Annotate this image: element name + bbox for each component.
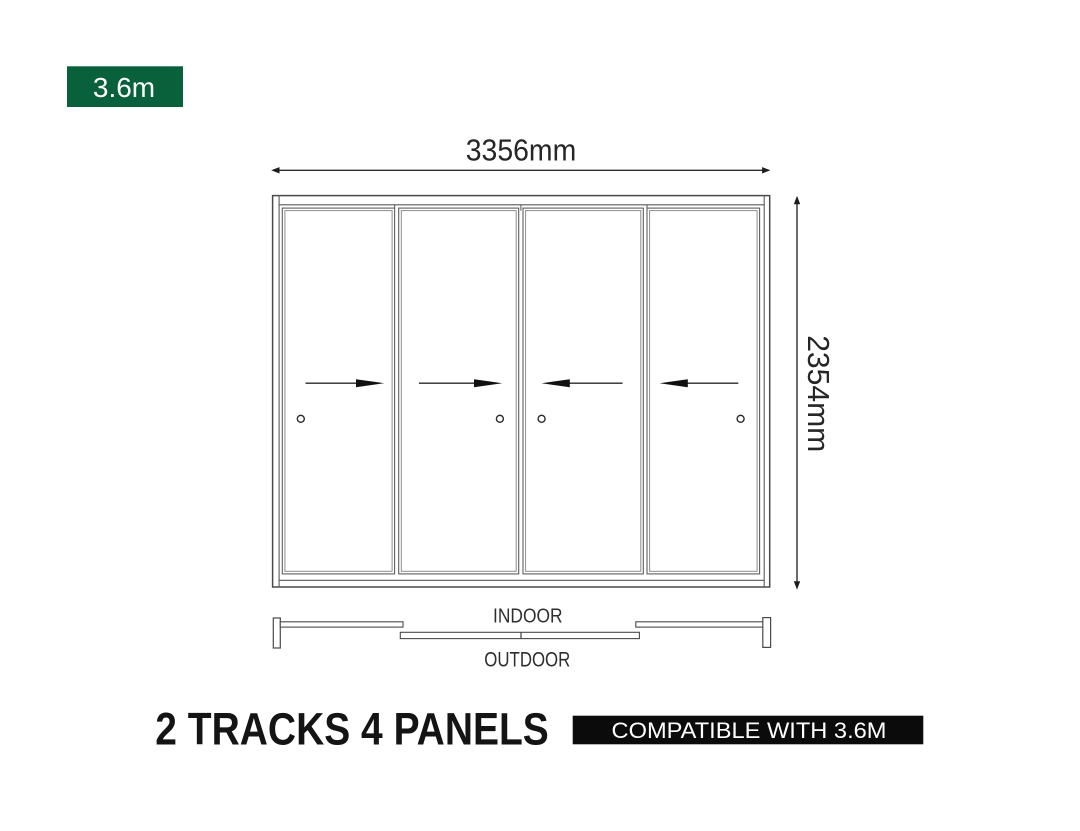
svg-text:3.6m: 3.6m [93,72,155,103]
svg-text:3356mm: 3356mm [466,134,577,168]
svg-text:COMPATIBLE WITH 3.6M: COMPATIBLE WITH 3.6M [612,718,887,743]
svg-text:2354mm: 2354mm [801,335,835,452]
svg-text:OUTDOOR: OUTDOOR [484,648,570,671]
svg-text:2 TRACKS 4 PANELS: 2 TRACKS 4 PANELS [155,704,549,755]
svg-text:INDOOR: INDOOR [493,606,563,628]
